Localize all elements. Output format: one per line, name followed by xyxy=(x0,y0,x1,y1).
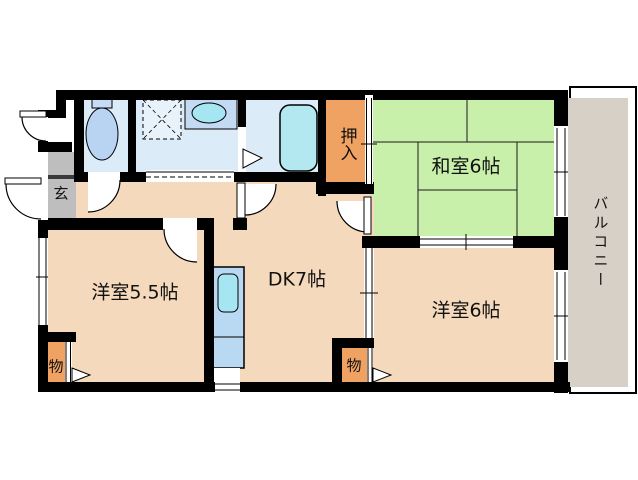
window-western6-balcony xyxy=(554,270,568,362)
room-label-genkan: 玄 xyxy=(53,186,68,203)
wall-segment xyxy=(233,172,322,182)
window-washitsu-balcony xyxy=(554,126,568,217)
room-label-western-6: 洋室6帖 xyxy=(431,300,500,321)
wall-segment xyxy=(128,100,136,176)
window-kitchen-south xyxy=(214,368,240,392)
room-label-balcony: バルコニー xyxy=(592,196,609,291)
room-label-dk: DK7帖 xyxy=(268,269,326,290)
genkan-step-line xyxy=(48,175,76,179)
wall-segment xyxy=(74,100,84,182)
window-west xyxy=(36,238,48,325)
room-label-western-5-5: 洋室5.5帖 xyxy=(91,282,178,303)
wall-segment xyxy=(362,236,420,248)
room-label-oshiire: 押入 xyxy=(336,127,355,161)
wall-segment xyxy=(42,332,76,342)
wall-segment xyxy=(38,218,163,230)
wall-segment xyxy=(554,362,568,393)
wall-segment xyxy=(38,228,48,238)
room-label-storage-right: 物 xyxy=(346,358,361,375)
room-label-storage-left: 物 xyxy=(48,359,63,376)
room-label-washitsu: 和室6帖 xyxy=(431,156,500,177)
wall-segment xyxy=(38,382,215,392)
wall-segment xyxy=(204,228,214,382)
wall-segment xyxy=(44,142,72,152)
washer-pad-icon xyxy=(143,100,181,139)
bathtub-icon xyxy=(280,105,317,171)
wall-segment xyxy=(318,90,326,196)
floorplan-page: 和室6帖 DK7帖 洋室5.5帖 洋室6帖 押入 バルコニー 玄 物 物 xyxy=(0,0,638,480)
wall-segment xyxy=(238,95,246,127)
window-washitsu-western6 xyxy=(420,234,513,250)
wall-segment xyxy=(554,216,568,270)
wall-segment xyxy=(240,382,570,392)
wall-segment xyxy=(233,218,247,230)
floorplan-drawing xyxy=(0,0,638,480)
sink-icon xyxy=(185,99,237,129)
wall-segment xyxy=(554,90,568,128)
washroom-sliding-door xyxy=(146,170,234,182)
wall-segment xyxy=(74,172,88,182)
wall-segment xyxy=(513,236,554,248)
wall-segment xyxy=(120,172,148,182)
wall-segment xyxy=(56,90,568,100)
kitchen-unit-icon xyxy=(212,267,244,368)
wall-segment xyxy=(332,338,342,385)
